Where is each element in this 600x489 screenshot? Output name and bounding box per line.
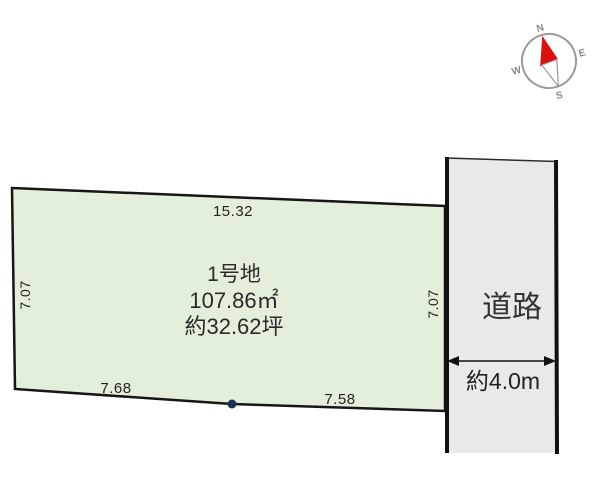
road-right-edge bbox=[556, 160, 557, 454]
dimension-bottom-right: 7.58 bbox=[324, 391, 355, 408]
land-plot-diagram: N E S W 15.32 7.07 7.07 7.68 7.58 1号地 10… bbox=[0, 0, 600, 489]
dimension-bottom-left: 7.68 bbox=[100, 380, 131, 397]
road-width-label: 約4.0m bbox=[466, 368, 540, 394]
dimension-left: 7.07 bbox=[17, 280, 33, 309]
parcel-area-sqm: 107.86㎡ bbox=[189, 288, 278, 313]
dimension-top: 15.32 bbox=[213, 203, 253, 220]
parcel-area-tsubo: 約32.62坪 bbox=[184, 314, 283, 339]
compass-letter-e: E bbox=[578, 47, 588, 59]
compass-rose-icon: N E S W bbox=[501, 14, 596, 112]
compass-letter-w: W bbox=[511, 65, 524, 78]
dimension-right: 7.07 bbox=[425, 289, 441, 318]
parcel-name: 1号地 bbox=[207, 263, 261, 286]
compass-letter-s: S bbox=[555, 90, 565, 102]
plot-drawing: N E S W 15.32 7.07 7.07 7.68 7.58 1号地 10… bbox=[0, 0, 600, 489]
compass-letter-n: N bbox=[535, 22, 545, 34]
road-label: 道路 bbox=[482, 291, 542, 324]
boundary-point-marker bbox=[228, 400, 237, 409]
